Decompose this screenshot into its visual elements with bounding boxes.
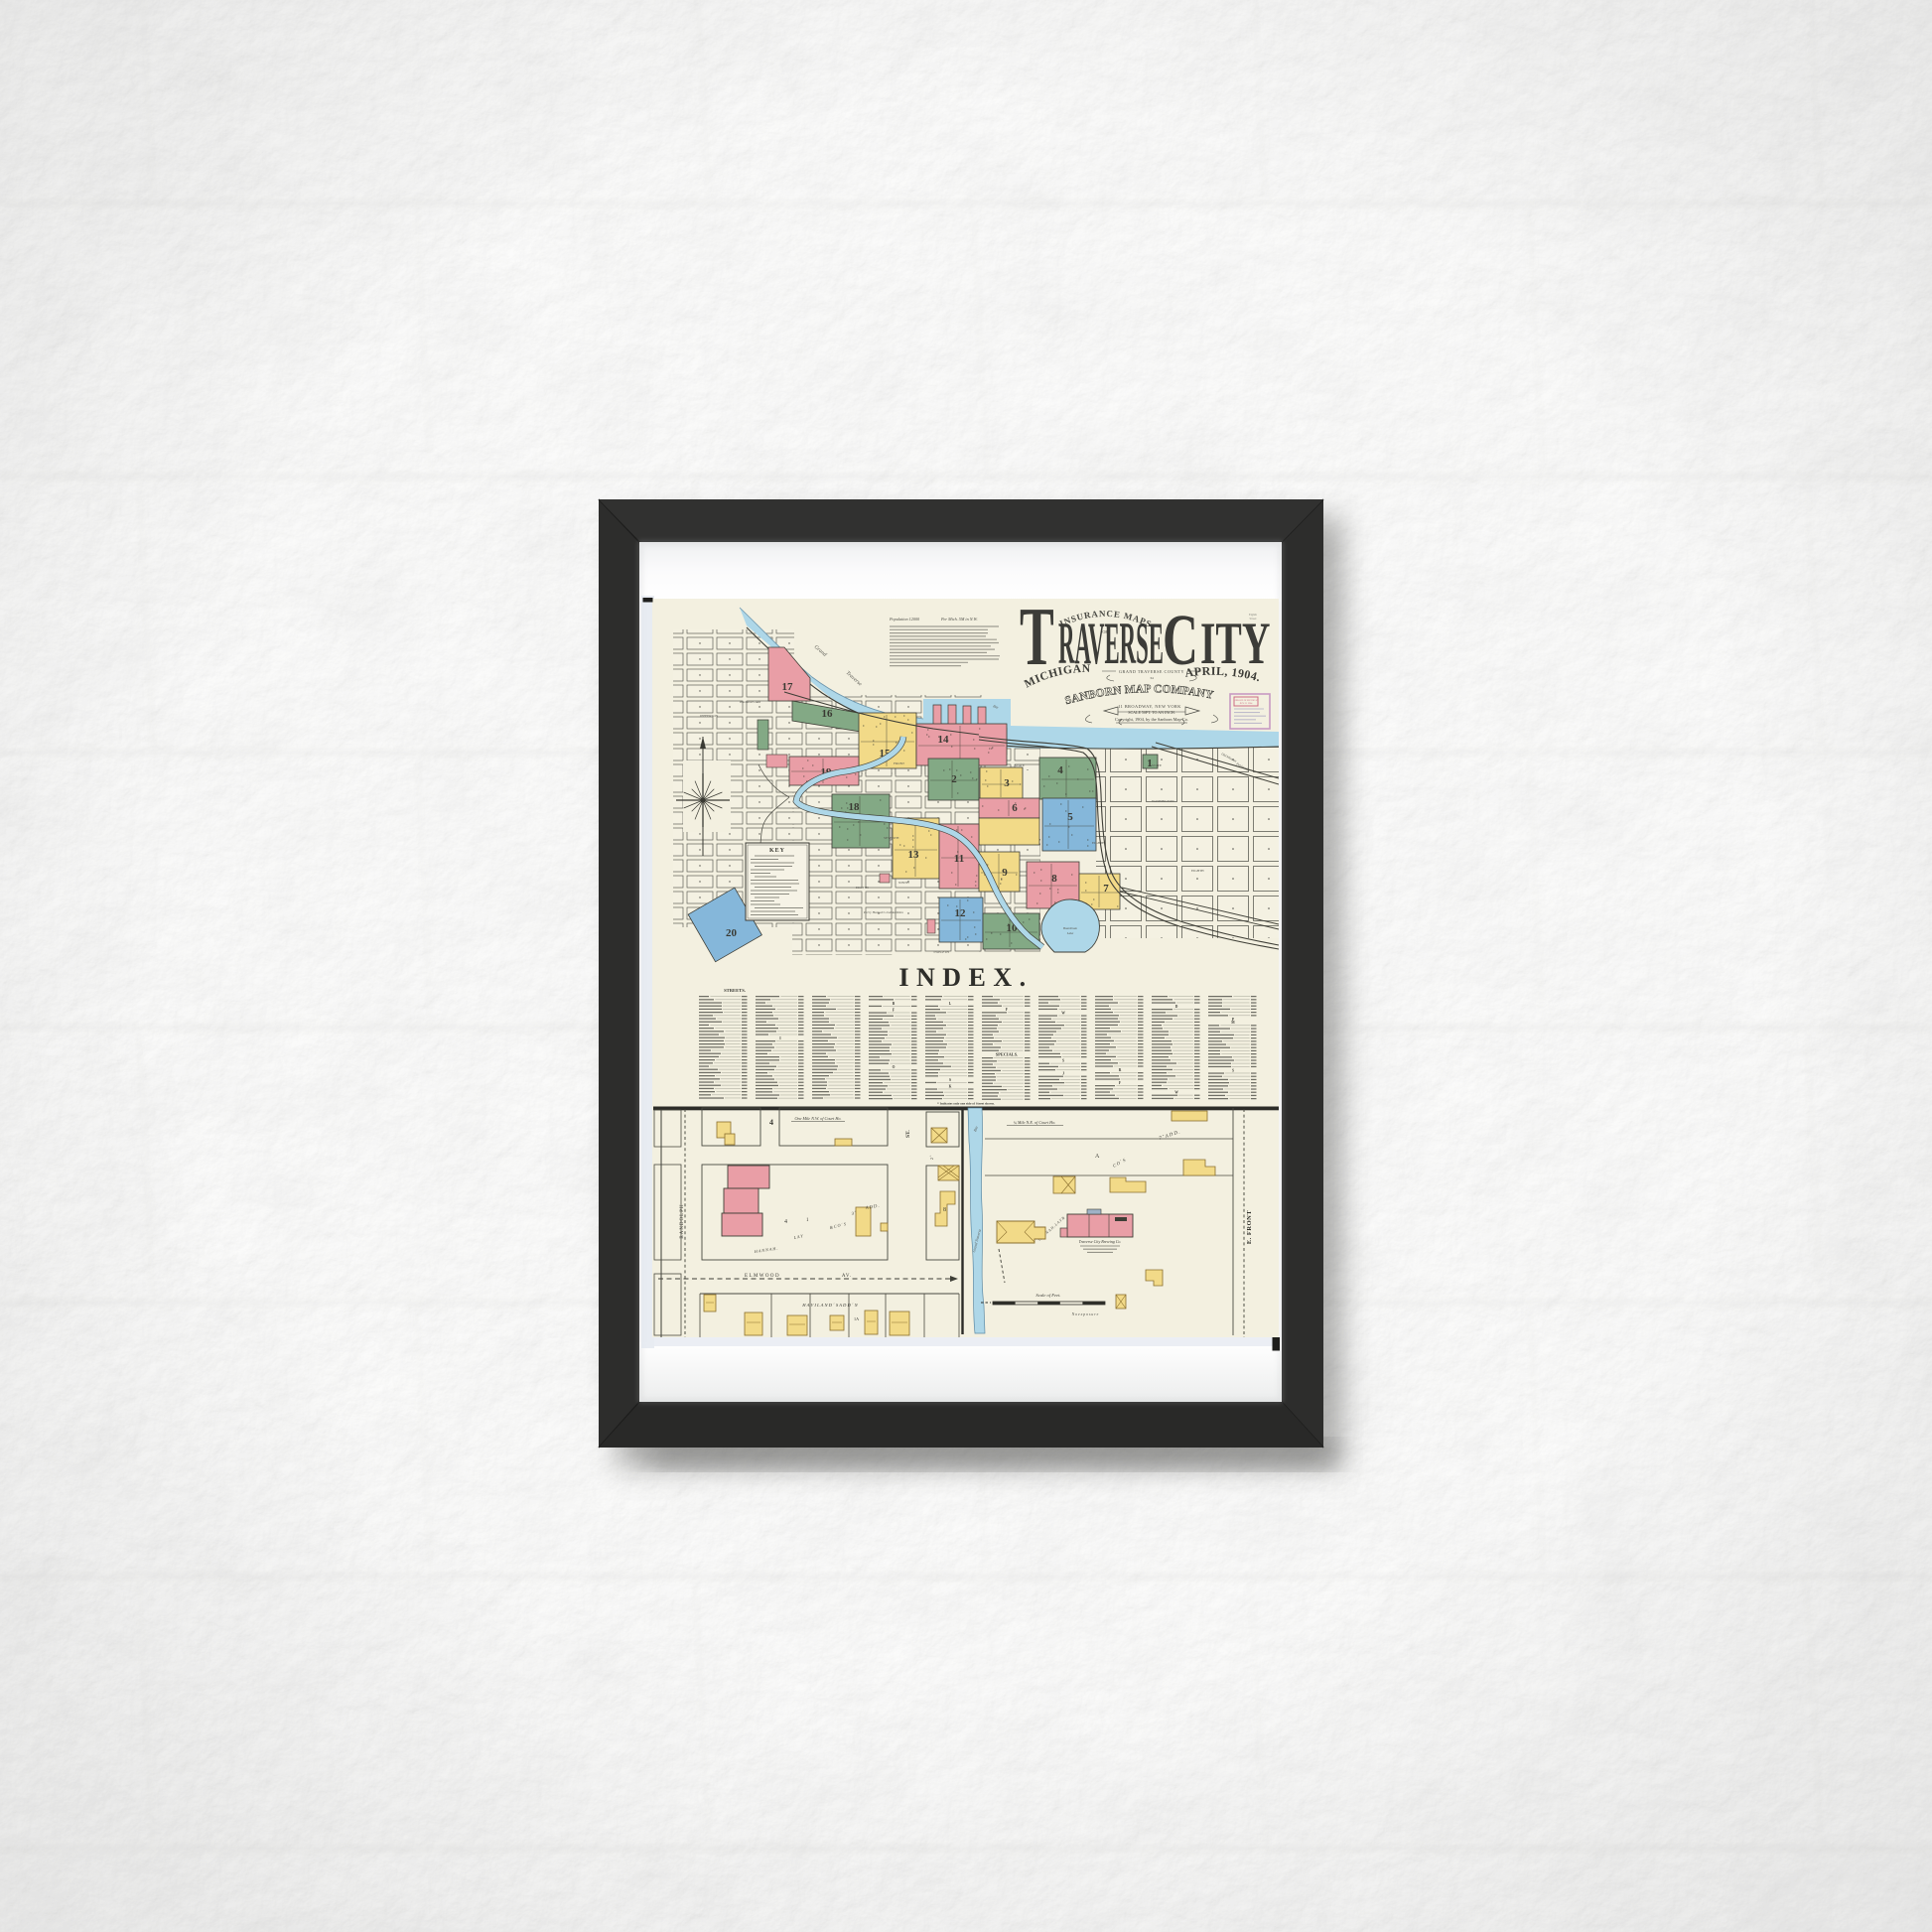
svg-text:STATE: STATE <box>1015 763 1025 767</box>
svg-text:7: 7 <box>1103 883 1109 895</box>
svg-text:8: 8 <box>943 1207 946 1213</box>
svg-text:NINTH: NINTH <box>898 881 909 885</box>
svg-text:17: 17 <box>782 681 794 693</box>
svg-text:N o e x p o s u r e: N o e x p o s u r e <box>1071 1312 1099 1316</box>
svg-text:13: 13 <box>908 849 920 861</box>
svg-text:FRONT: FRONT <box>894 761 905 765</box>
svg-text:H A V I L A N D ΄ S A D D: H A V I L A N D ΄ S A D D ΄ N <box>801 1303 858 1308</box>
svg-text:Per Mich. 5M in N.W.: Per Mich. 5M in N.W. <box>940 617 978 621</box>
svg-text:SPECIALS.: SPECIALS. <box>996 1051 1019 1056</box>
svg-text:EIGHTH: EIGHTH <box>1191 869 1204 873</box>
svg-text:12: 12 <box>955 907 967 919</box>
svg-text:6: 6 <box>1012 802 1018 814</box>
svg-text:* Indicates only one side of S: * Indicates only one side of Street show… <box>937 1102 995 1106</box>
svg-text:9: 9 <box>1002 867 1008 879</box>
svg-text:K: K <box>949 1084 952 1088</box>
svg-text:O: O <box>893 1065 896 1069</box>
svg-text:Population 12000: Population 12000 <box>889 617 920 621</box>
svg-text:Boardman: Boardman <box>1063 926 1077 930</box>
svg-text:AV.: AV. <box>842 1274 852 1279</box>
svg-text:EIGHTH: EIGHTH <box>856 886 869 890</box>
svg-text:5: 5 <box>1067 811 1073 823</box>
svg-text:SCALE 50FT. TO AN INCH.: SCALE 50FT. TO AN INCH. <box>1128 710 1175 715</box>
svg-text:Street: Street <box>1250 617 1257 621</box>
svg-text:8: 8 <box>1051 873 1057 885</box>
svg-text:INDEX.: INDEX. <box>898 963 1033 992</box>
svg-text:Haviland's Add: Haviland's Add <box>739 700 760 704</box>
svg-text:D: D <box>1175 1005 1178 1009</box>
svg-text:2 ΅: 2 ΅ <box>929 1155 934 1160</box>
svg-text:2: 2 <box>951 773 957 785</box>
svg-text:A: A <box>1095 1154 1100 1160</box>
svg-text:R: R <box>1119 1068 1122 1072</box>
svg-text:4: 4 <box>1057 764 1063 776</box>
svg-text:W: W <box>1061 1011 1065 1015</box>
svg-text:18: 18 <box>849 801 861 813</box>
svg-text:1A: 1A <box>854 1316 859 1321</box>
svg-text:TWELFTH: TWELFTH <box>933 950 949 954</box>
svg-text:¼ Mile N.E. of Court Ho.: ¼ Mile N.E. of Court Ho. <box>1014 1120 1056 1125</box>
svg-text:GRAND TRAVERSE COUNTY: GRAND TRAVERSE COUNTY <box>1119 669 1184 674</box>
svg-text:ST.: ST. <box>905 1130 911 1138</box>
svg-text:ELMWOOD: ELMWOOD <box>745 1274 780 1279</box>
svg-text:11: 11 <box>954 853 964 865</box>
svg-text:STREETS.: STREETS. <box>724 988 746 993</box>
svg-text:4: 4 <box>769 1118 773 1127</box>
svg-text:SEVENTH: SEVENTH <box>884 836 899 840</box>
svg-text:Perry Hannah's 2nd Addition: Perry Hannah's 2nd Addition <box>863 910 903 914</box>
svg-text:S: S <box>1232 1068 1234 1072</box>
svg-text:EIGHTH: EIGHTH <box>1092 841 1105 845</box>
svg-text:S: S <box>1062 1059 1064 1063</box>
svg-text:JUN 22 1904: JUN 22 1904 <box>1240 702 1254 705</box>
svg-text:S: S <box>949 1078 951 1082</box>
svg-text:20: 20 <box>726 927 738 939</box>
svg-text:J: J <box>1062 1072 1064 1076</box>
svg-text:34: 34 <box>1150 676 1154 680</box>
svg-text:W: W <box>1174 1091 1178 1095</box>
svg-text:Lake: Lake <box>1066 931 1074 935</box>
svg-text:KEY: KEY <box>769 848 785 854</box>
svg-text:E. FRONT: E. FRONT <box>1246 1210 1253 1245</box>
svg-text:14: 14 <box>938 734 950 746</box>
svg-text:Scale of Feet.: Scale of Feet. <box>1035 1293 1060 1298</box>
svg-text:STATE: STATE <box>1152 763 1162 767</box>
svg-text:Traverse City Brewing Co.: Traverse City Brewing Co. <box>1079 1239 1122 1244</box>
svg-text:WASHINGTON: WASHINGTON <box>1152 799 1174 803</box>
svg-text:JEFFERSON: JEFFERSON <box>700 714 719 718</box>
svg-text:16: 16 <box>822 708 834 720</box>
svg-text:3: 3 <box>1004 777 1010 789</box>
svg-text:One Mile N.W. of Court Ho.: One Mile N.W. of Court Ho. <box>794 1116 841 1121</box>
svg-text:M: M <box>1231 1021 1235 1025</box>
svg-text:4: 4 <box>784 1219 787 1225</box>
